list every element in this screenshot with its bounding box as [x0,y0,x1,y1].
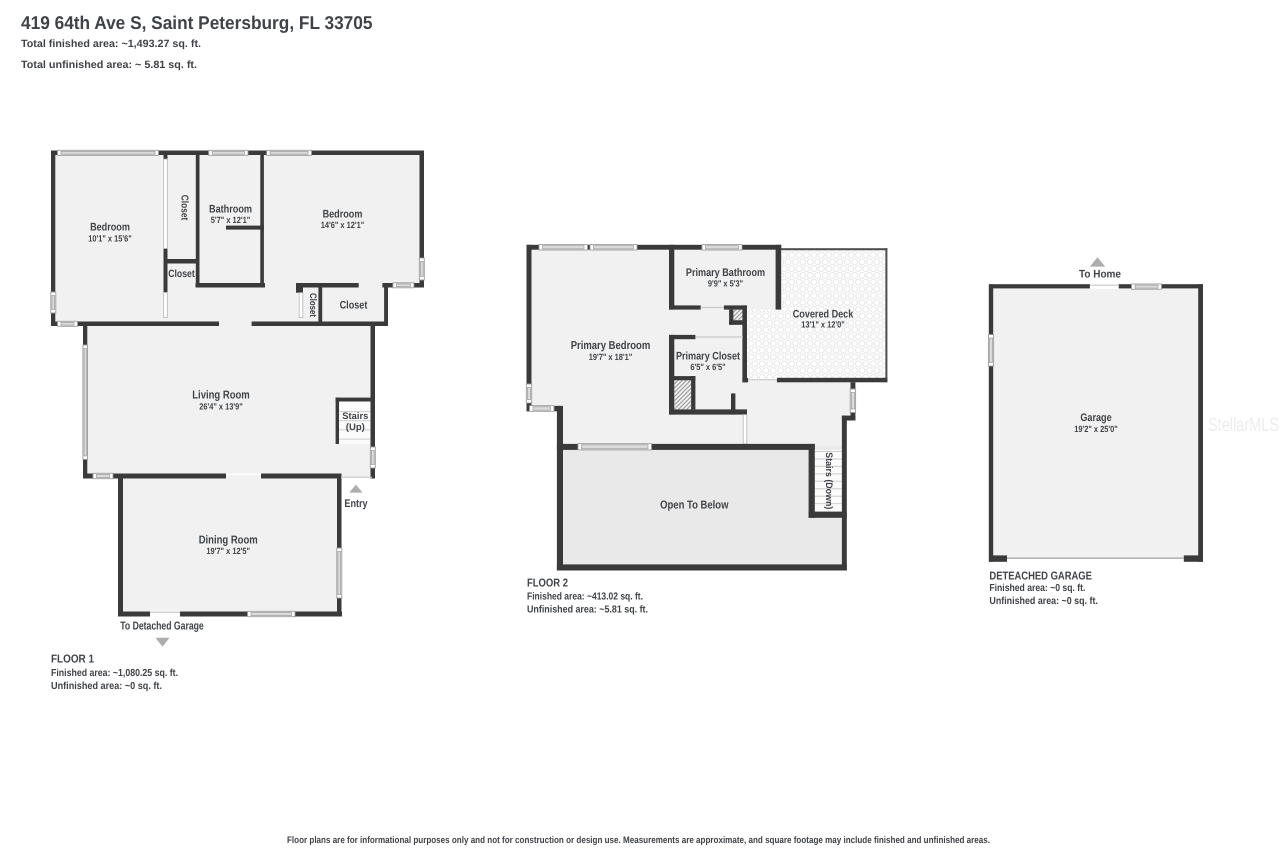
svg-text:19'7" x 12'5": 19'7" x 12'5" [206,546,250,556]
svg-text:14'6" x 12'1": 14'6" x 12'1" [321,220,365,230]
svg-text:FLOOR 1: FLOOR 1 [51,654,95,666]
svg-text:6'5" x 6'5": 6'5" x 6'5" [690,362,725,372]
svg-text:Garage: Garage [1080,412,1111,424]
svg-text:9'9" x 5'3": 9'9" x 5'3" [708,279,743,289]
svg-text:Bedroom: Bedroom [323,209,363,221]
svg-text:Total unfinished area: ~ 5.81: Total unfinished area: ~ 5.81 sq. ft. [21,59,197,71]
svg-text:26'4" x 13'9": 26'4" x 13'9" [199,402,243,412]
svg-text:19'7" x 18'1": 19'7" x 18'1" [589,352,633,362]
svg-text:19'2" x 25'0": 19'2" x 25'0" [1074,424,1118,434]
svg-text:(Up): (Up) [346,422,365,433]
svg-text:Unfinished area: ~0 sq. ft.: Unfinished area: ~0 sq. ft. [51,681,162,692]
svg-text:Closet: Closet [168,268,195,280]
svg-text:419 64th Ave S, Saint Petersbu: 419 64th Ave S, Saint Petersburg, FL 337… [21,12,373,33]
svg-text:Finished area: ~1,080.25 sq. f: Finished area: ~1,080.25 sq. ft. [51,668,178,679]
svg-text:Closet: Closet [340,300,368,312]
svg-text:Unfinished area: ~0 sq. ft.: Unfinished area: ~0 sq. ft. [989,596,1098,607]
svg-text:FLOOR 2: FLOOR 2 [527,578,568,590]
svg-text:Living Room: Living Room [192,390,250,402]
svg-text:Total finished area: ~1,493.27: Total finished area: ~1,493.27 sq. ft. [21,38,201,50]
svg-text:Primary Bathroom: Primary Bathroom [686,267,765,279]
svg-text:Floor plans are for informatio: Floor plans are for informational purpos… [287,835,990,846]
svg-text:10'1" x 15'6": 10'1" x 15'6" [88,234,132,244]
svg-text:5'7" x 12'1": 5'7" x 12'1" [211,215,251,225]
svg-text:Finished area: ~413.02 sq. ft.: Finished area: ~413.02 sq. ft. [527,591,643,602]
svg-text:To Detached Garage: To Detached Garage [120,621,204,633]
svg-text:DETEACHED GARAGE: DETEACHED GARAGE [989,570,1092,582]
svg-text:Closet: Closet [179,195,190,221]
svg-text:Bedroom: Bedroom [90,222,130,234]
svg-text:Entry: Entry [344,498,368,510]
svg-text:Closet: Closet [307,293,318,318]
svg-text:StellarMLS: StellarMLS [1208,415,1279,436]
svg-text:Open To Below: Open To Below [660,500,728,512]
svg-text:13'1" x 12'0": 13'1" x 12'0" [801,319,845,329]
svg-text:Dining Room: Dining Room [199,535,258,547]
svg-text:Primary Closet: Primary Closet [676,351,740,363]
svg-text:Stairs: Stairs [342,411,368,422]
svg-text:Bathroom: Bathroom [209,204,252,216]
svg-text:Primary Bedroom: Primary Bedroom [571,340,651,352]
svg-text:To Home: To Home [1079,269,1121,281]
svg-text:Unfinished area: ~5.81 sq. ft.: Unfinished area: ~5.81 sq. ft. [527,604,648,615]
svg-text:Stairs (Down): Stairs (Down) [823,452,834,509]
svg-text:Finished area: ~0 sq. ft.: Finished area: ~0 sq. ft. [989,583,1085,594]
